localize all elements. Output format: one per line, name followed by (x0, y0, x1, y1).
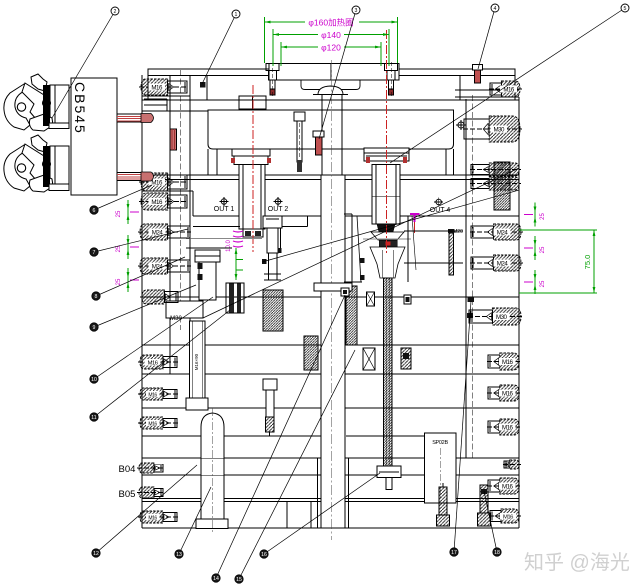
svg-text:M16: M16 (502, 424, 514, 431)
svg-text:M16: M16 (151, 199, 163, 206)
svg-text:10: 10 (91, 377, 97, 383)
svg-text:4: 4 (494, 6, 497, 12)
svg-text:M30: M30 (493, 126, 505, 133)
svg-text:3: 3 (355, 8, 358, 14)
svg-text:M16: M16 (502, 359, 514, 366)
svg-text:OUT 1: OUT 1 (214, 206, 235, 213)
svg-text:M16: M16 (503, 514, 514, 520)
svg-text:14: 14 (213, 576, 219, 582)
svg-text:25: 25 (116, 278, 122, 285)
svg-text:OUT 2: OUT 2 (268, 206, 289, 213)
svg-text:8: 8 (95, 294, 98, 300)
svg-text:M16: M16 (148, 392, 157, 398)
svg-text:25: 25 (540, 280, 546, 287)
svg-text:CB545: CB545 (72, 82, 88, 135)
svg-text:25: 25 (540, 246, 546, 253)
svg-text:M30: M30 (496, 314, 508, 321)
svg-text:12: 12 (93, 551, 99, 557)
svg-text:16: 16 (261, 552, 267, 558)
svg-text:M16: M16 (502, 483, 514, 490)
svg-text:M16: M16 (148, 515, 157, 521)
svg-text:M16: M16 (502, 390, 514, 397)
svg-text:M16: M16 (151, 179, 163, 186)
svg-text:φ140: φ140 (321, 30, 341, 40)
svg-text:5: 5 (624, 6, 627, 12)
svg-text:知乎 @海光: 知乎 @海光 (524, 551, 630, 574)
svg-text:25: 25 (116, 210, 122, 217)
svg-text:6: 6 (93, 208, 96, 214)
svg-text:1: 1 (235, 12, 238, 18)
svg-text:M16: M16 (148, 421, 157, 427)
svg-text:M20: M20 (453, 229, 463, 235)
svg-text:B05: B05 (119, 489, 136, 500)
svg-text:13: 13 (176, 552, 182, 558)
svg-text:M24: M24 (497, 260, 509, 267)
svg-text:φ120: φ120 (321, 43, 341, 53)
svg-text:2: 2 (114, 9, 117, 15)
svg-text:7: 7 (93, 250, 96, 256)
svg-text:M24: M24 (497, 229, 509, 236)
svg-text:25: 25 (540, 213, 546, 220)
svg-text:10.0: 10.0 (226, 240, 232, 252)
svg-text:M16×90: M16×90 (194, 353, 199, 370)
svg-text:75.0: 75.0 (583, 255, 592, 270)
svg-text:φ160加热圈: φ160加热圈 (308, 18, 353, 28)
svg-text:18: 18 (494, 550, 500, 556)
svg-text:OUT 4: OUT 4 (430, 207, 451, 214)
svg-text:M16: M16 (151, 84, 163, 91)
svg-text:17: 17 (451, 550, 457, 556)
svg-text:15: 15 (236, 577, 242, 583)
svg-text:11: 11 (91, 415, 96, 421)
svg-text:SP02B: SP02B (432, 440, 448, 446)
svg-text:B04: B04 (119, 464, 136, 475)
svg-text:M16: M16 (148, 360, 159, 366)
svg-text:9: 9 (93, 325, 96, 331)
